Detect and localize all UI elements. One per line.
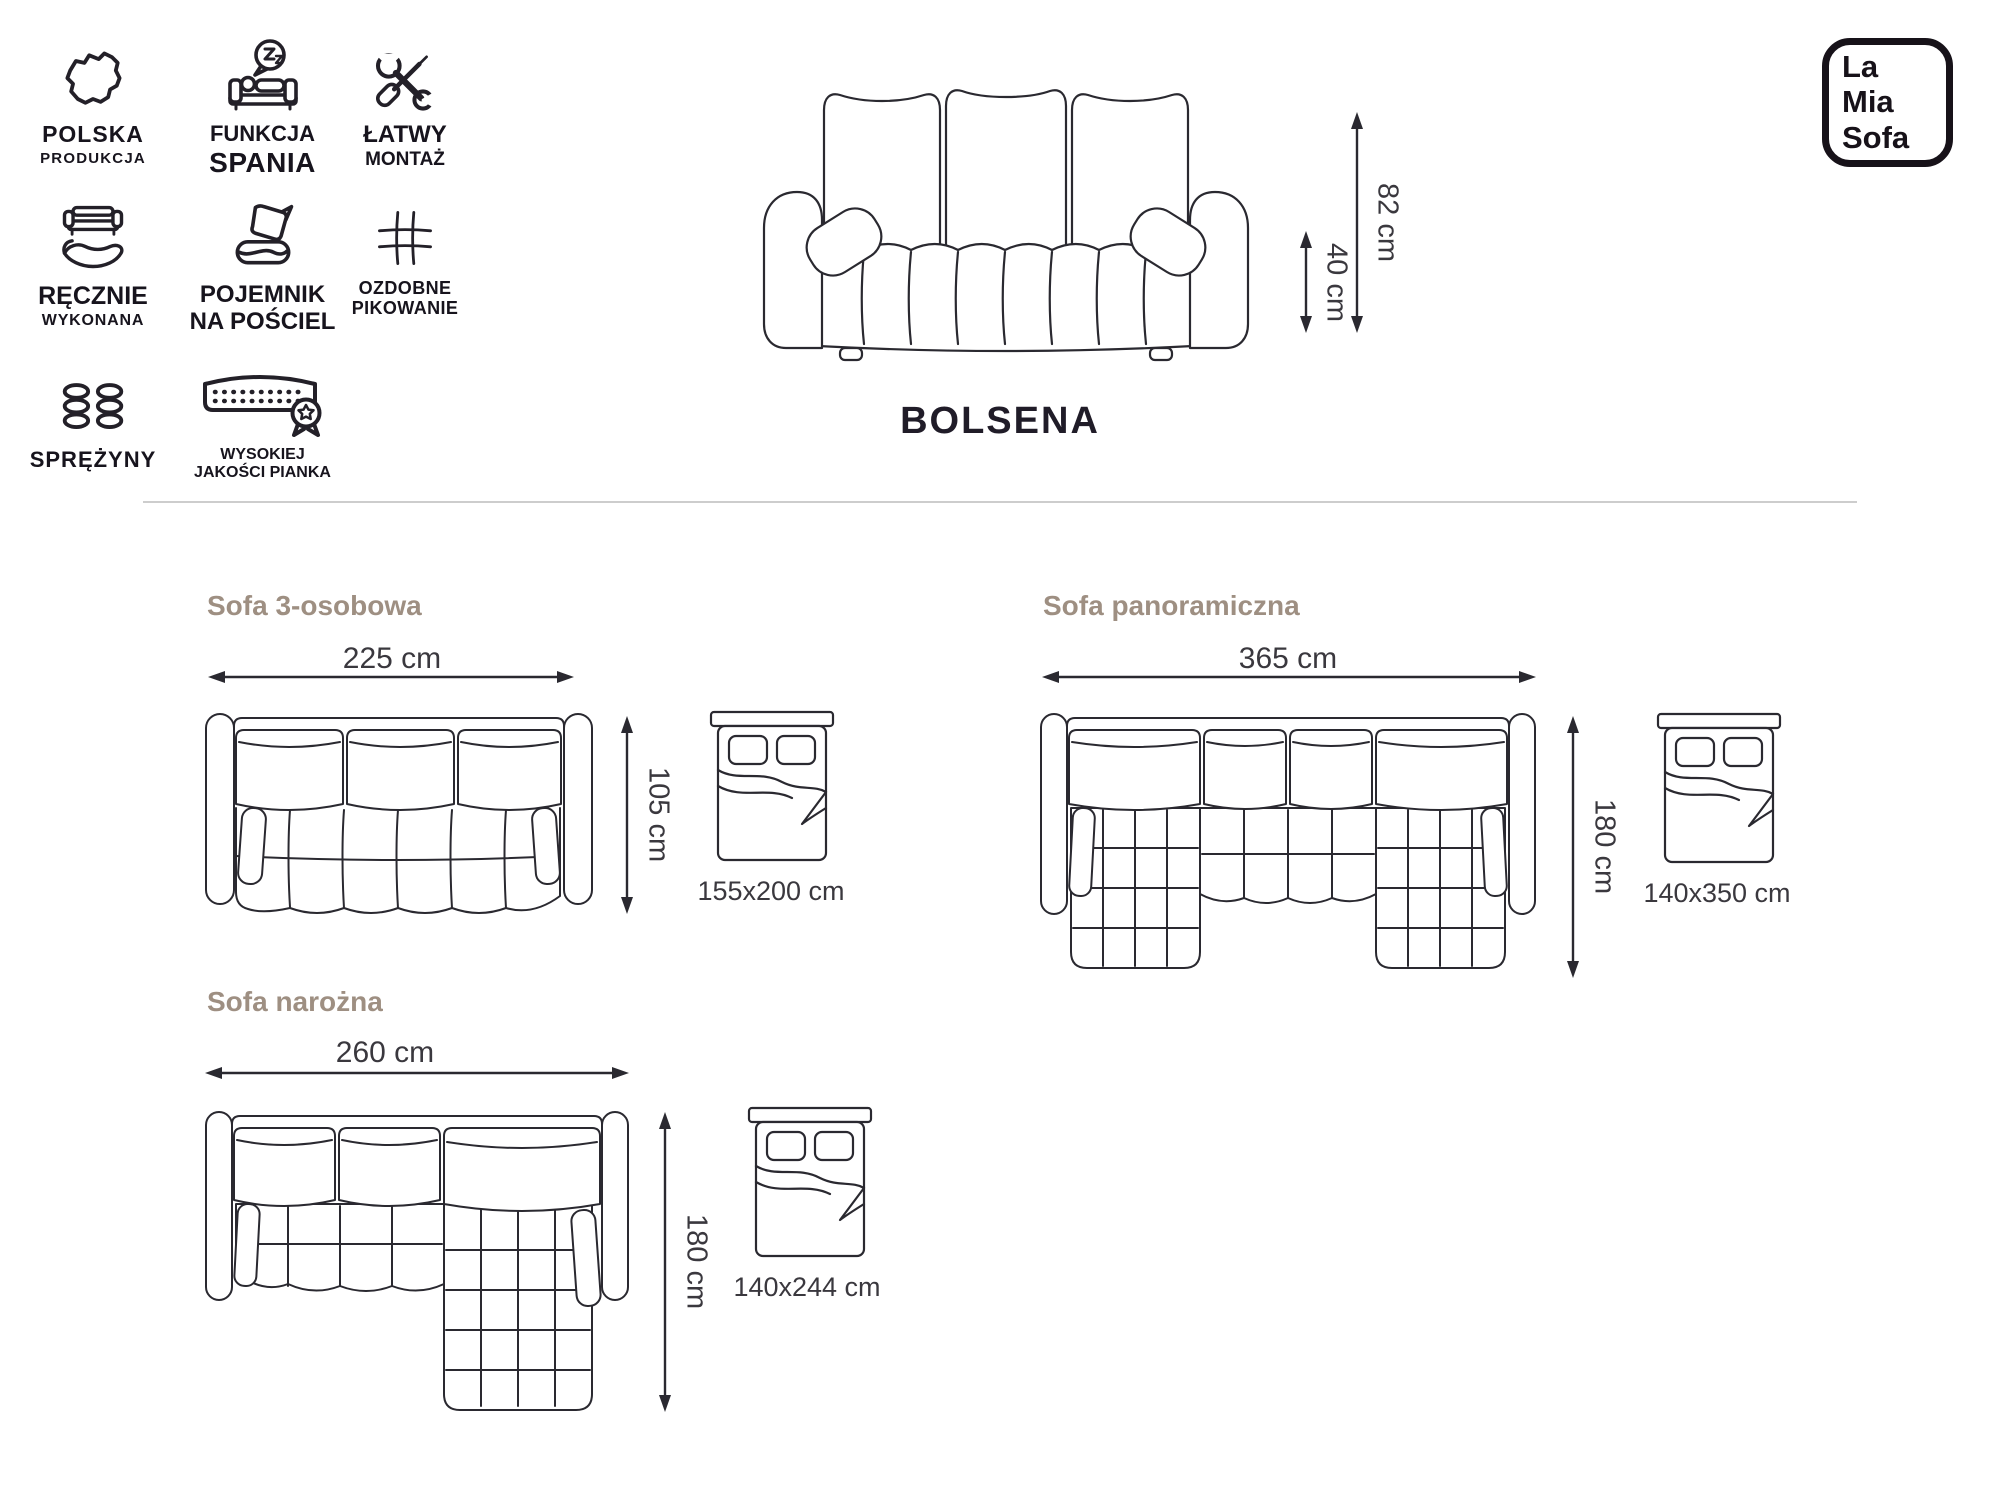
feature-sublabel: MONTAŻ (330, 149, 480, 170)
feature-label: RĘCZNIE (18, 282, 168, 310)
variant-title: Sofa panoramiczna (1043, 590, 1300, 622)
logo-line: Sofa (1842, 120, 1946, 155)
overall-height-arrow (1348, 112, 1366, 333)
depth-arrow (1564, 716, 1582, 978)
feature-sublabel: PRODUKCJA (18, 151, 168, 168)
product-spec-sheet: POLSKA PRODUKCJA FUNKCJA SPAN (0, 0, 2000, 1500)
feature-label: ŁATWY (330, 122, 480, 149)
depth-dimension-label: 180 cm (1586, 716, 1622, 978)
handmade-icon (18, 196, 168, 276)
depth-arrow (618, 716, 636, 914)
width-arrow (1042, 668, 1536, 686)
feature-label: WYSOKIEJ (180, 446, 345, 464)
overall-height-label: 82 cm (1369, 112, 1405, 333)
sofa-3-seater-top-view (203, 706, 595, 927)
feature-wysokiej-jakosci-pianka: WYSOKIEJ JAKOŚCI PIANKA (180, 370, 345, 482)
sofa-panoramic-top-view (1038, 708, 1538, 982)
bedding-storage-icon (185, 196, 340, 276)
feature-pojemnik-na-posciel: POJEMNIK NA POŚCIEL (185, 196, 340, 336)
sofa-corner-top-view (203, 1106, 631, 1422)
easy-assembly-icon (330, 36, 480, 118)
feature-sublabel: JAKOŚCI PIANKA (180, 464, 345, 482)
product-name: BOLSENA (800, 400, 1200, 443)
variant-title: Sofa 3-osobowa (207, 590, 422, 622)
variant-title: Sofa narożna (207, 986, 383, 1018)
feature-sublabel: PIKOWANIE (330, 298, 480, 318)
feature-label: POJEMNIK (185, 282, 340, 309)
seat-height-arrow (1297, 231, 1315, 333)
foam-quality-icon (180, 370, 345, 440)
feature-sublabel: NA POŚCIEL (185, 309, 340, 336)
poland-map-icon (18, 36, 168, 118)
feature-funkcja-spania: FUNKCJA SPANIA (185, 36, 340, 178)
feature-latwy-montaz: ŁATWY MONTAŻ (330, 36, 480, 170)
brand-logo: La Mia Sofa (1822, 38, 1953, 167)
sleep-function-icon (185, 36, 340, 118)
depth-arrow (656, 1112, 674, 1412)
feature-sublabel: WYKONANA (18, 312, 168, 330)
logo-line: Mia (1842, 84, 1946, 119)
springs-icon (18, 370, 168, 440)
width-arrow (205, 1064, 629, 1082)
feature-label: FUNKCJA (185, 122, 340, 147)
logo-line: La (1842, 49, 1946, 84)
sofa-front-view-diagram (752, 84, 1260, 368)
bed-size-label: 140x244 cm (707, 1272, 907, 1303)
depth-dimension-label: 180 cm (678, 1112, 714, 1412)
feature-sublabel: SPANIA (185, 147, 340, 178)
bed-size-label: 140x350 cm (1617, 878, 1817, 909)
feature-label: OZDOBNE (330, 278, 480, 298)
feature-sprezyny: SPRĘŻYNY (18, 370, 168, 473)
section-divider (143, 501, 1857, 503)
bed-size-icon (746, 1106, 874, 1260)
feature-polska-produkcja: POLSKA PRODUKCJA (18, 36, 168, 168)
feature-recznie-wykonana: RĘCZNIE WYKONANA (18, 196, 168, 330)
feature-ozdobne-pikowanie: OZDOBNE PIKOWANIE (330, 196, 480, 318)
bed-size-icon (1655, 712, 1783, 866)
width-arrow (208, 668, 574, 686)
bed-size-label: 155x200 cm (671, 876, 871, 907)
feature-label: POLSKA (18, 122, 168, 148)
bed-size-icon (708, 710, 836, 864)
feature-label: SPRĘŻYNY (18, 448, 168, 473)
quilting-icon (330, 196, 480, 270)
